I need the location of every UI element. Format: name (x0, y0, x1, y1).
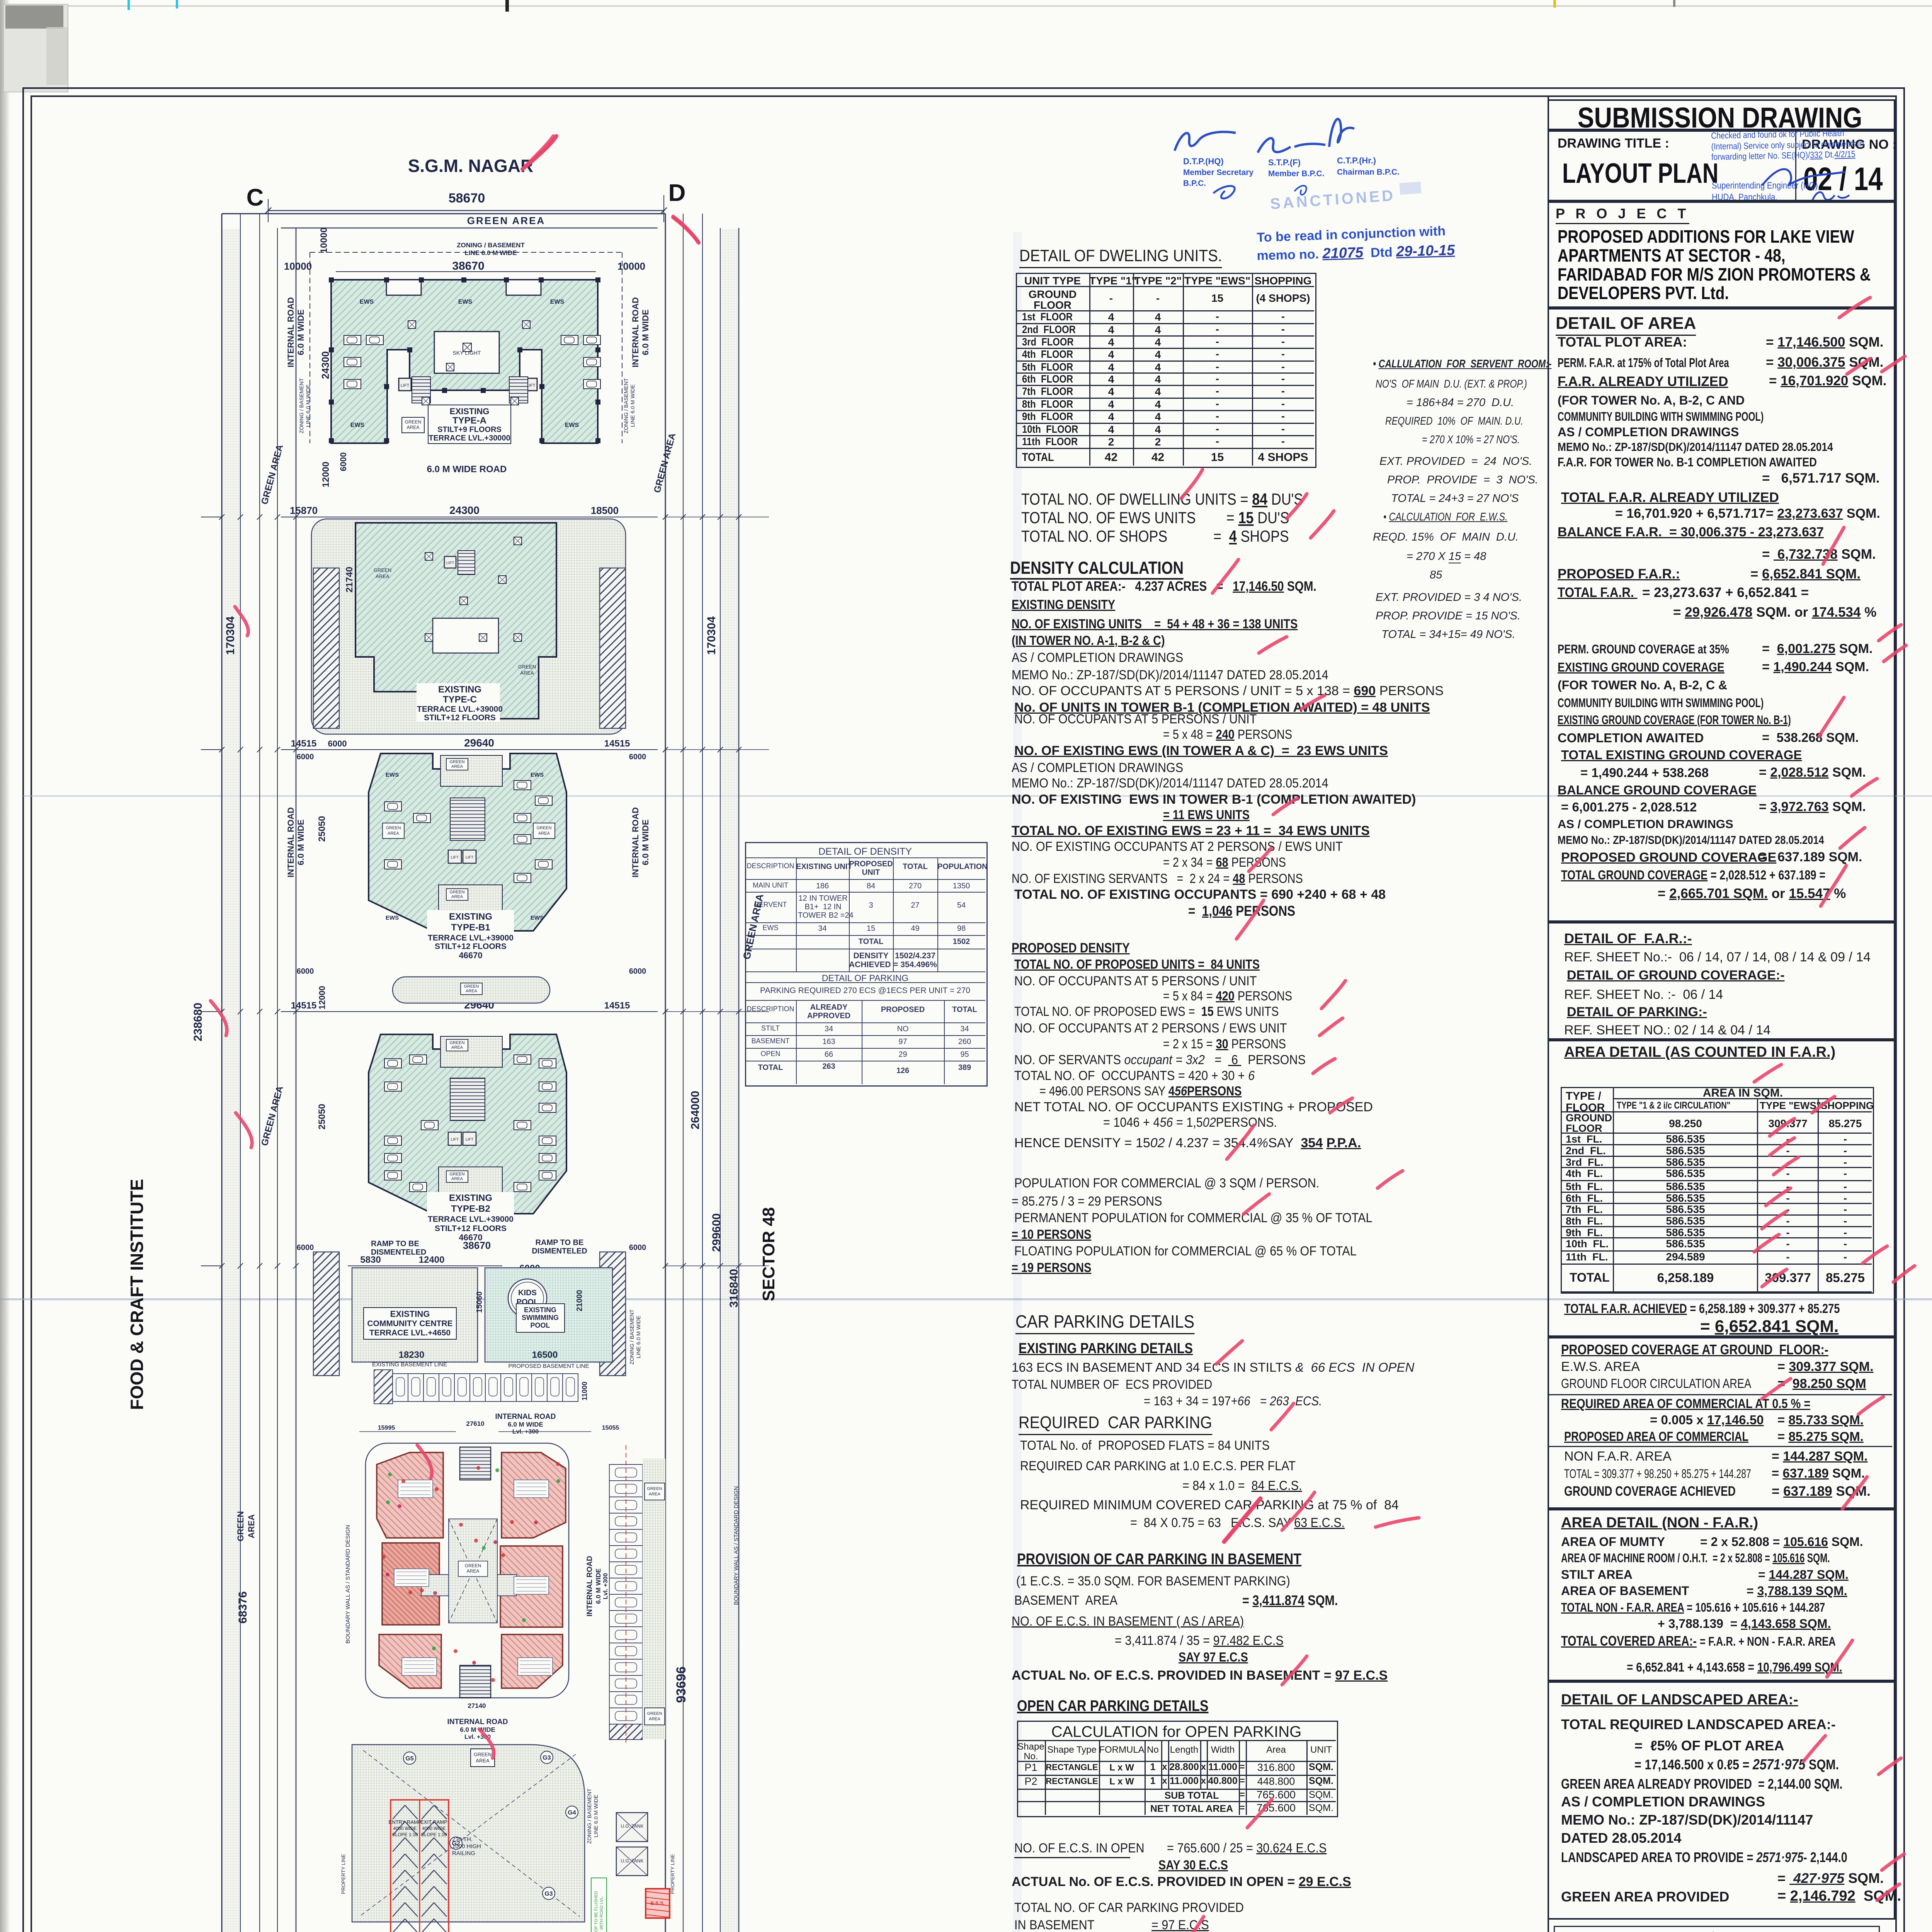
svg-text:5830: 5830 (360, 1255, 381, 1265)
svg-text:PROPOSED BASEMENT LINE: PROPOSED BASEMENT LINE (509, 1363, 589, 1369)
svg-text:GREEN: GREEN (464, 984, 479, 989)
svg-text:15055: 15055 (602, 1425, 619, 1431)
svg-text:C: C (247, 184, 264, 211)
svg-text:GREEN: GREEN (465, 1563, 481, 1568)
svg-text:299600: 299600 (710, 1213, 723, 1252)
svg-text:D: D (668, 180, 686, 206)
svg-text:GREEN: GREEN (405, 419, 422, 425)
svg-text:STILT+12 FLOORS: STILT+12 FLOORS (435, 942, 507, 951)
svg-text:S.G.M. NAGAR: S.G.M. NAGAR (408, 156, 534, 176)
svg-text:TERRACE LVL.+39000: TERRACE LVL.+39000 (428, 1215, 514, 1224)
svg-text:12400: 12400 (419, 1255, 445, 1265)
svg-text:GREEN: GREEN (536, 826, 551, 830)
svg-text:EWS: EWS (458, 299, 473, 305)
svg-text:AREA: AREA (247, 1514, 256, 1538)
svg-text:12000: 12000 (321, 462, 331, 488)
svg-text:POOL: POOL (530, 1321, 550, 1329)
svg-text:EWS: EWS (386, 915, 399, 921)
svg-text:24300: 24300 (320, 351, 331, 379)
svg-text:ENTRY RAMP: ENTRY RAMP (389, 1819, 422, 1825)
svg-text:38670: 38670 (463, 1240, 491, 1251)
svg-text:WITH ROAD LVL.: WITH ROAD LVL. (599, 1896, 604, 1930)
svg-text:6.0 M WIDE: 6.0 M WIDE (641, 820, 650, 866)
svg-text:14515: 14515 (291, 1000, 317, 1011)
svg-text:15060: 15060 (475, 1291, 484, 1313)
svg-text:170304: 170304 (705, 616, 718, 655)
svg-text:EWS: EWS (531, 772, 544, 778)
svg-text:AREA: AREA (649, 1717, 661, 1721)
svg-text:LIFT: LIFT (451, 855, 459, 860)
svg-text:46670: 46670 (459, 951, 482, 960)
svg-text:316840: 316840 (728, 1269, 740, 1308)
svg-text:TYPE-B2: TYPE-B2 (451, 1204, 490, 1214)
svg-text:GREEN: GREEN (374, 567, 391, 573)
svg-text:238680: 238680 (192, 1003, 204, 1041)
svg-text:EXISTING BASEMENT LINE: EXISTING BASEMENT LINE (372, 1361, 447, 1368)
svg-text:ZONING / BASEMENT: ZONING / BASEMENT (457, 241, 525, 249)
svg-text:6.0 M WIDE: 6.0 M WIDE (296, 310, 306, 355)
svg-text:TYPE-A: TYPE-A (452, 415, 486, 426)
svg-text:COMMUNITY CENTRE: COMMUNITY CENTRE (367, 1319, 452, 1328)
svg-text:264000: 264000 (689, 1091, 702, 1129)
svg-text:AREA: AREA (538, 831, 550, 836)
svg-text:AREA: AREA (467, 1568, 480, 1574)
svg-text:14515: 14515 (604, 738, 630, 749)
svg-text:GREEN: GREEN (386, 826, 401, 830)
svg-text:GREEN AREA: GREEN AREA (467, 215, 545, 226)
svg-text:INTERNAL ROAD: INTERNAL ROAD (286, 807, 296, 878)
svg-text:INTERNAL ROAD: INTERNAL ROAD (631, 297, 640, 367)
svg-text:DISMENTELED: DISMENTELED (532, 1247, 587, 1255)
svg-text:AREA: AREA (388, 831, 400, 836)
svg-text:E.S.S.: E.S.S. (651, 1900, 665, 1906)
svg-text:EXISTING: EXISTING (449, 1193, 492, 1203)
svg-text:GREEN: GREEN (449, 1172, 464, 1177)
svg-text:GREEN: GREEN (449, 890, 464, 895)
svg-text:EWS: EWS (386, 772, 399, 778)
svg-text:21740: 21740 (344, 567, 355, 593)
svg-text:25050: 25050 (317, 816, 327, 842)
svg-text:RAMP TO BE: RAMP TO BE (536, 1238, 584, 1247)
svg-text:AREA: AREA (407, 425, 420, 430)
svg-text:EWS: EWS (350, 422, 365, 429)
svg-text:TOP TO BE FLUSHED: TOP TO BE FLUSHED (594, 1891, 599, 1932)
svg-text:25050: 25050 (317, 1104, 327, 1130)
svg-text:SWIMMING: SWIMMING (522, 1314, 559, 1321)
svg-text:Member Secretary: Member Secretary (1183, 168, 1253, 177)
svg-text:SECTOR 48: SECTOR 48 (759, 1207, 778, 1301)
svg-text:BOUNDARY WALL AS / STANDARD DE: BOUNDARY WALL AS / STANDARD DESIGN (733, 1486, 740, 1605)
svg-text:58670: 58670 (449, 191, 485, 206)
svg-text:15870: 15870 (290, 505, 318, 516)
svg-text:AREA: AREA (451, 1045, 463, 1050)
svg-text:14515: 14515 (291, 738, 317, 749)
svg-text:29640: 29640 (464, 737, 494, 749)
svg-text:STILT+12 FLOORS: STILT+12 FLOORS (435, 1224, 507, 1233)
svg-text:GREEN AREA: GREEN AREA (259, 1085, 285, 1147)
svg-text:EXIT RAMP: EXIT RAMP (420, 1819, 447, 1825)
svg-text:G3: G3 (543, 1755, 551, 1761)
svg-text:1000 HIGH: 1000 HIGH (452, 1843, 481, 1850)
svg-text:KIDS: KIDS (518, 1289, 537, 1297)
svg-text:RAILING: RAILING (452, 1850, 475, 1857)
svg-text:6000: 6000 (297, 1243, 314, 1252)
svg-text:B.P.C.: B.P.C. (1183, 179, 1206, 188)
svg-text:EWS: EWS (550, 299, 565, 305)
svg-text:93696: 93696 (674, 1667, 689, 1703)
svg-text:6.0 M WIDE: 6.0 M WIDE (296, 820, 306, 866)
svg-text:SLOPE 1:10: SLOPE 1:10 (421, 1832, 447, 1837)
svg-text:68376: 68376 (236, 1591, 249, 1623)
svg-text:LIFT: LIFT (401, 383, 410, 388)
svg-text:C.T.P.(Hr.): C.T.P.(Hr.) (1337, 156, 1376, 165)
svg-text:EWS: EWS (360, 299, 374, 305)
svg-text:LINE 6.0 M WIDE: LINE 6.0 M WIDE (635, 1316, 641, 1358)
svg-text:TERRACE LVL.+39000: TERRACE LVL.+39000 (417, 705, 503, 714)
svg-text:6.0 M WIDE: 6.0 M WIDE (641, 310, 650, 355)
svg-text:AREA: AREA (451, 895, 463, 899)
svg-text:EXISTING: EXISTING (450, 406, 490, 416)
svg-text:G5: G5 (405, 1755, 413, 1762)
svg-text:TYPE-B1: TYPE-B1 (451, 922, 490, 933)
svg-text:INTERNAL ROAD: INTERNAL ROAD (286, 297, 296, 367)
svg-text:G3: G3 (544, 1891, 553, 1897)
svg-text:RAMP TO BE: RAMP TO BE (371, 1240, 419, 1248)
svg-text:10000: 10000 (284, 260, 312, 272)
svg-text:SLOPE 1:10: SLOPE 1:10 (392, 1832, 418, 1837)
svg-text:38670: 38670 (452, 260, 484, 272)
svg-text:INTERNAL ROAD: INTERNAL ROAD (631, 807, 640, 878)
svg-text:12000: 12000 (317, 986, 327, 1009)
svg-text:230 TH.: 230 TH. (452, 1836, 473, 1843)
svg-text:S.T.P.(F): S.T.P.(F) (1268, 158, 1301, 167)
svg-text:27140: 27140 (468, 1702, 486, 1709)
svg-text:24300: 24300 (449, 504, 480, 516)
svg-text:LIFT: LIFT (466, 855, 474, 860)
svg-text:STILT+9 FLOORS: STILT+9 FLOORS (437, 425, 502, 434)
svg-text:ZONING / BASEMENT: ZONING / BASEMENT (298, 378, 304, 434)
svg-text:EXISTING: EXISTING (390, 1309, 430, 1319)
svg-text:6000: 6000 (629, 1243, 646, 1252)
svg-text:6.0 M WIDE: 6.0 M WIDE (508, 1421, 543, 1428)
svg-text:GREEN AREA: GREEN AREA (741, 893, 766, 960)
svg-text:TERRACE LVL.+4650: TERRACE LVL.+4650 (369, 1328, 451, 1337)
svg-text:6000: 6000 (297, 967, 314, 976)
svg-text:EWS: EWS (565, 422, 579, 429)
svg-text:AREA: AREA (451, 764, 463, 769)
svg-text:LIFT: LIFT (446, 561, 454, 565)
svg-text:10000: 10000 (617, 260, 645, 272)
svg-text:LIFT: LIFT (451, 1138, 459, 1142)
svg-text:GREEN: GREEN (236, 1511, 245, 1541)
svg-text:GREEN: GREEN (449, 760, 464, 764)
svg-text:GREEN: GREEN (474, 1752, 492, 1757)
svg-text:TERRACE LVL.+30000: TERRACE LVL.+30000 (429, 434, 510, 442)
svg-text:18500: 18500 (591, 505, 619, 516)
svg-text:LINE 6.0 M WIDE: LINE 6.0 M WIDE (305, 384, 311, 427)
svg-text:EXISTING: EXISTING (438, 684, 481, 695)
svg-text:STILT+12 FLOORS: STILT+12 FLOORS (424, 713, 496, 722)
svg-text:U.G. TANK: U.G. TANK (621, 1858, 644, 1864)
svg-text:6000: 6000 (338, 452, 348, 471)
svg-text:EXISTING: EXISTING (524, 1306, 556, 1314)
svg-text:21000: 21000 (575, 1290, 584, 1311)
svg-text:BOUNDARY WALL AS / STANDARD DE: BOUNDARY WALL AS / STANDARD DESIGN (345, 1525, 351, 1643)
svg-text:LINE 6.0 M WIDE: LINE 6.0 M WIDE (464, 249, 517, 257)
svg-text:U.G. TANK: U.G. TANK (621, 1823, 644, 1829)
svg-text:15995: 15995 (378, 1425, 395, 1431)
svg-text:6000: 6000 (297, 753, 314, 761)
svg-text:TERRACE LVL.+39000: TERRACE LVL.+39000 (428, 934, 514, 942)
svg-text:G4: G4 (568, 1810, 576, 1816)
svg-text:ZONING / BASEMENT: ZONING / BASEMENT (629, 1309, 635, 1365)
svg-text:GREEN AREA: GREEN AREA (259, 444, 285, 506)
svg-text:GREEN: GREEN (647, 1711, 662, 1716)
svg-text:Chairman B.P.C.: Chairman B.P.C. (1337, 168, 1400, 177)
svg-text:ZONING / BASEMENT: ZONING / BASEMENT (586, 1788, 592, 1844)
svg-text:Lvl. +300: Lvl. +300 (602, 1573, 609, 1599)
svg-text:LINE 6.0 M WIDE: LINE 6.0 M WIDE (629, 384, 636, 427)
svg-text:EWS: EWS (531, 915, 544, 921)
svg-text:GREEN: GREEN (647, 1486, 662, 1491)
svg-text:27610: 27610 (466, 1420, 484, 1427)
svg-text:AREA: AREA (376, 573, 389, 579)
svg-text:16500: 16500 (532, 1350, 558, 1360)
svg-text:14515: 14515 (604, 1000, 630, 1011)
svg-text:4000 WIDE: 4000 WIDE (422, 1826, 446, 1831)
svg-text:EXISTING: EXISTING (449, 912, 492, 922)
svg-text:ZONING / BASEMENT: ZONING / BASEMENT (623, 378, 629, 434)
svg-text:170304: 170304 (224, 616, 237, 655)
svg-text:6.0 M WIDE: 6.0 M WIDE (595, 1568, 602, 1604)
svg-text:11000: 11000 (581, 1381, 588, 1400)
svg-text:SANCTIONED: SANCTIONED (1270, 187, 1396, 213)
svg-text:AREA: AREA (451, 1177, 463, 1181)
svg-text:AREA: AREA (476, 1758, 490, 1764)
svg-text:GREEN: GREEN (449, 1041, 464, 1045)
svg-text:FOOD & CRAFT INSTITUTE: FOOD & CRAFT INSTITUTE (127, 1179, 147, 1410)
svg-text:INTERNAL ROAD: INTERNAL ROAD (586, 1556, 594, 1617)
svg-text:10000: 10000 (319, 228, 329, 253)
svg-text:PROPERTY LINE: PROPERTY LINE (670, 1854, 675, 1894)
svg-text:6.0 M WIDE ROAD: 6.0 M WIDE ROAD (427, 464, 507, 474)
svg-text:4000 WIDE: 4000 WIDE (393, 1826, 417, 1831)
svg-text:D.T.P.(HQ): D.T.P.(HQ) (1183, 156, 1224, 166)
svg-text:6000: 6000 (629, 753, 646, 761)
svg-text:INTERNAL ROAD: INTERNAL ROAD (447, 1718, 508, 1726)
svg-text:AREA: AREA (649, 1492, 661, 1497)
svg-text:AREA: AREA (520, 670, 534, 676)
svg-text:TYPE-C: TYPE-C (443, 694, 477, 705)
svg-text:INTERNAL ROAD: INTERNAL ROAD (495, 1413, 556, 1421)
svg-text:GREEN: GREEN (518, 664, 536, 670)
svg-text:PROPERTY LINE: PROPERTY LINE (340, 1854, 346, 1894)
svg-text:6000: 6000 (328, 739, 347, 748)
svg-text:Member B.P.C.: Member B.P.C. (1268, 169, 1325, 178)
svg-text:6000: 6000 (629, 967, 646, 976)
svg-text:LINE 6.0 M WIDE: LINE 6.0 M WIDE (593, 1795, 599, 1837)
svg-text:LIFT: LIFT (466, 1138, 474, 1142)
svg-text:SKY LIGHT: SKY LIGHT (453, 350, 481, 356)
svg-text:AREA: AREA (466, 989, 478, 993)
svg-text:18230: 18230 (399, 1350, 425, 1360)
